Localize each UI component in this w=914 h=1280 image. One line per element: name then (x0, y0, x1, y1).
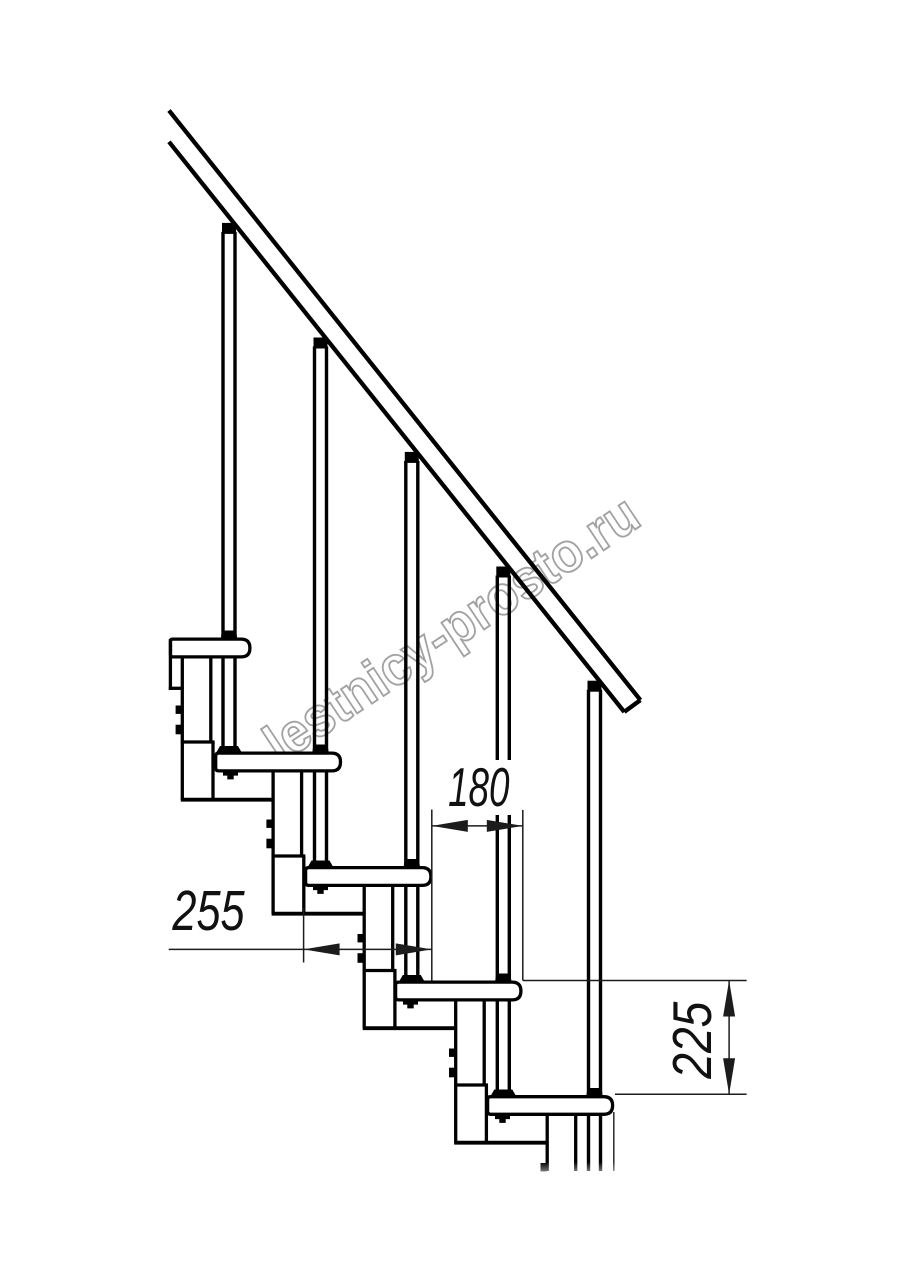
svg-text:180: 180 (448, 757, 509, 818)
svg-text:225: 225 (661, 1001, 723, 1080)
svg-text:255: 255 (172, 878, 246, 942)
